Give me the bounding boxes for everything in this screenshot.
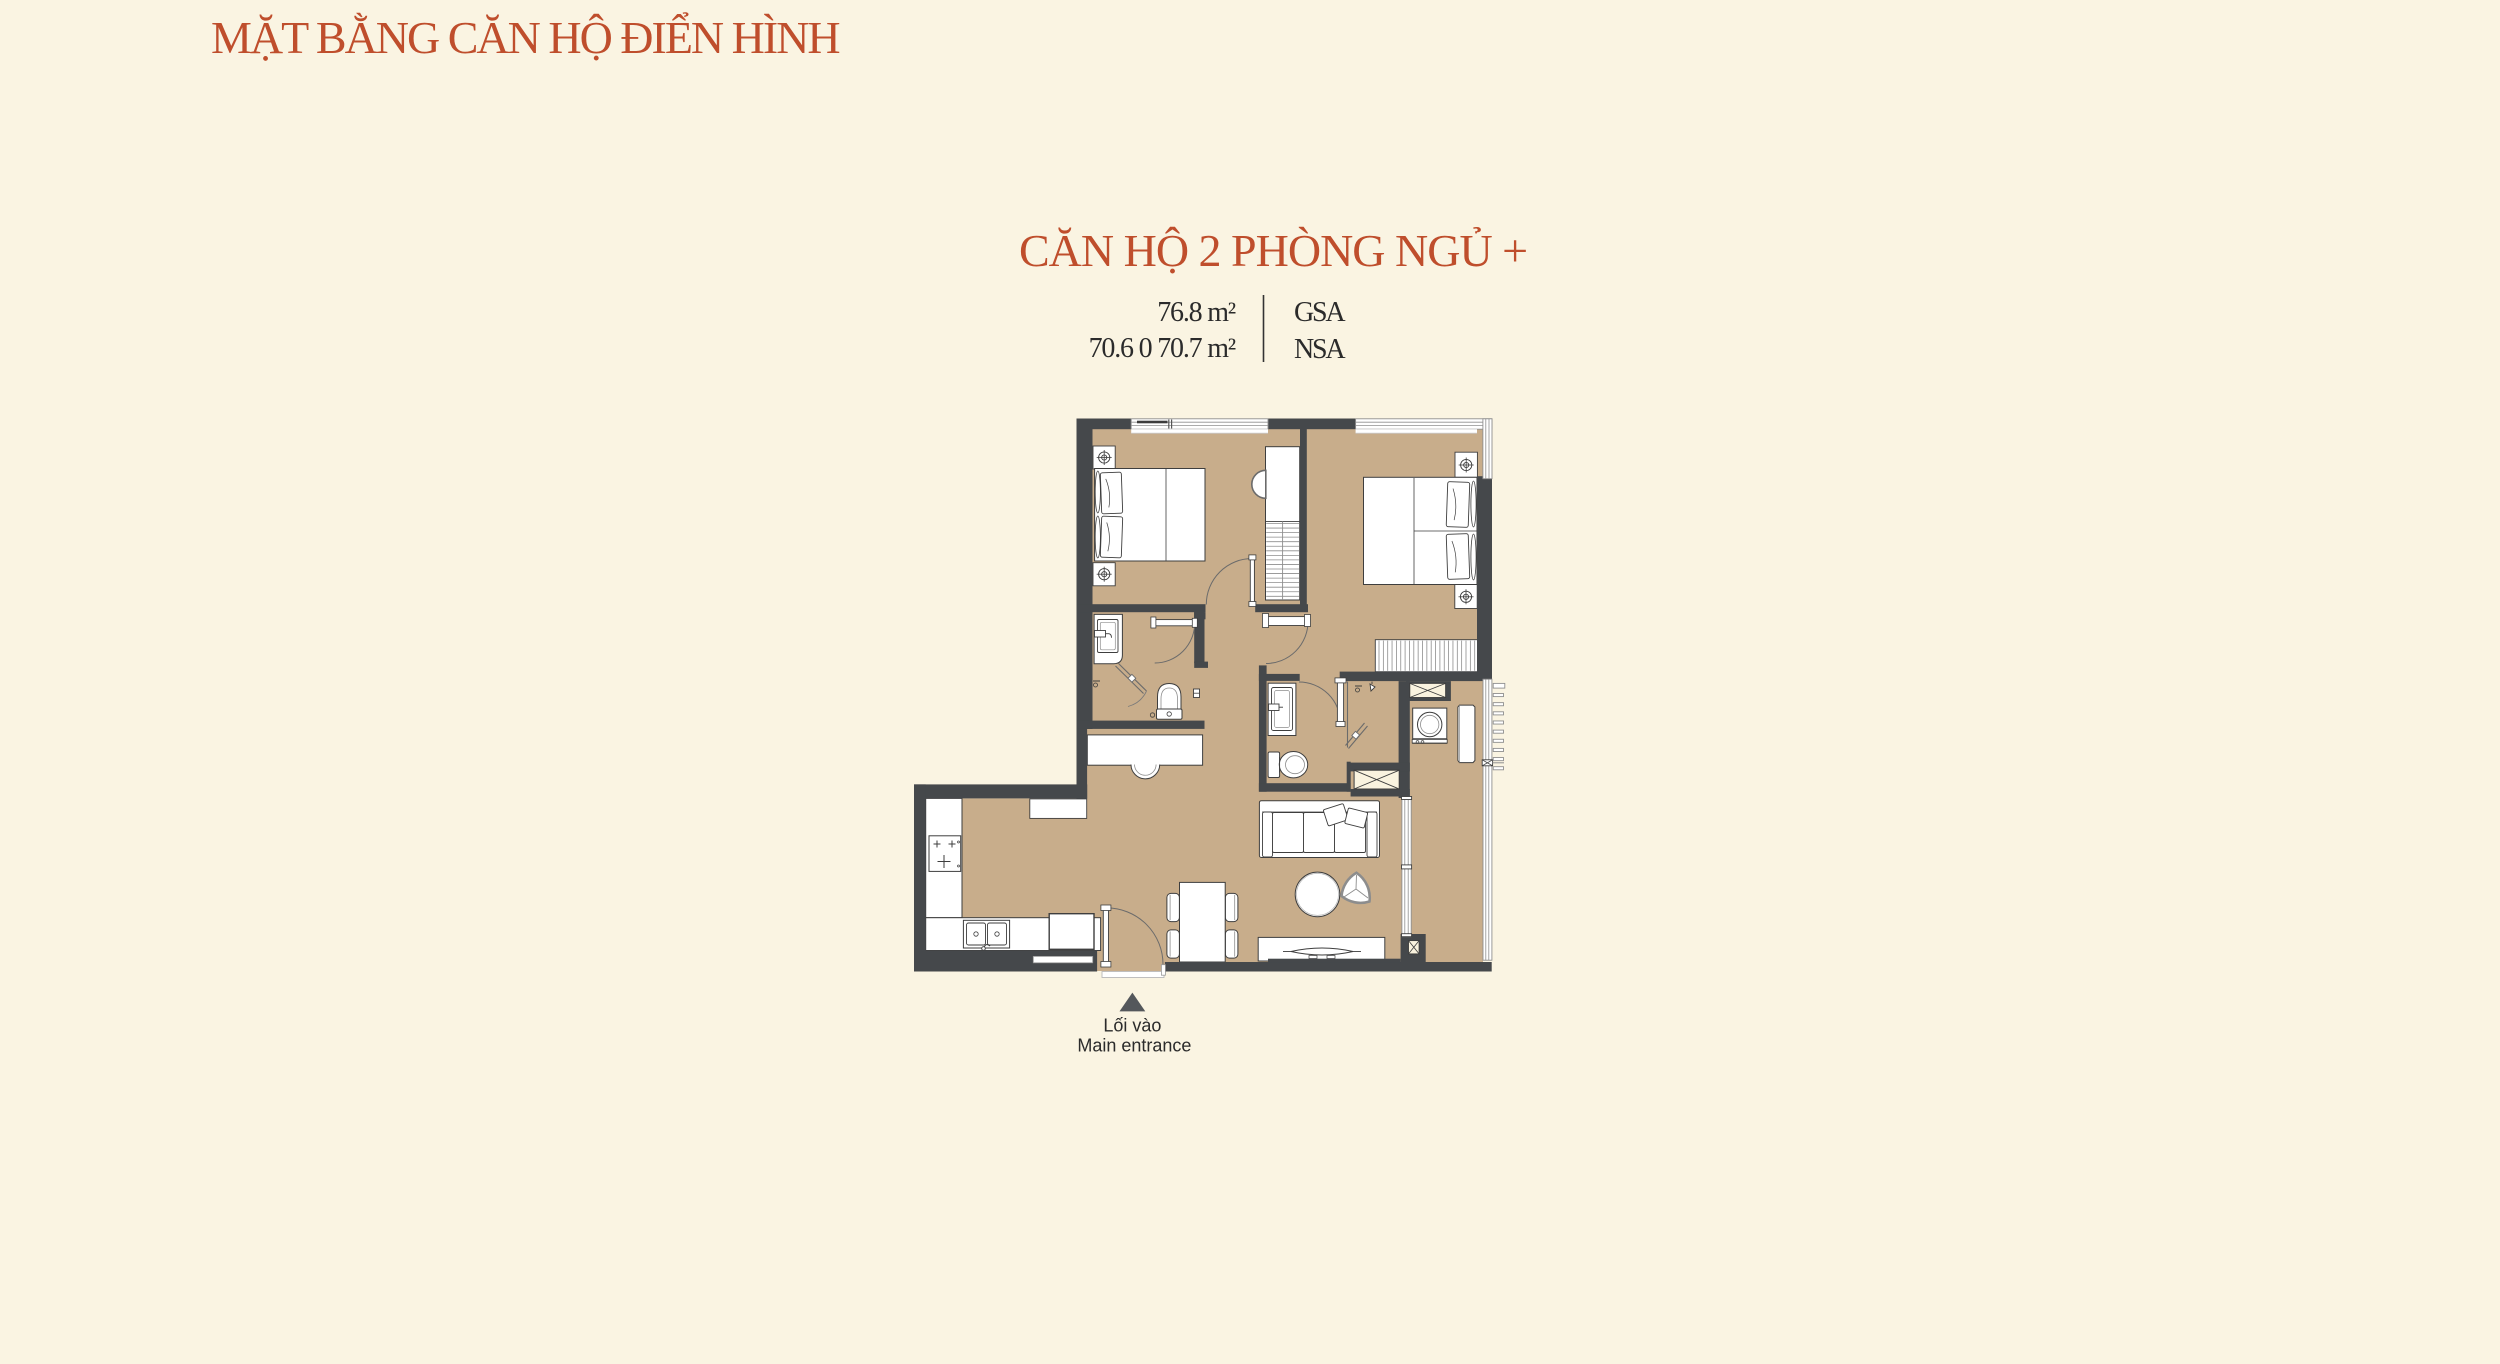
svg-text:76.8 m²: 76.8 m²	[1157, 297, 1236, 328]
svg-text:Lối vào: Lối vào	[1103, 1016, 1161, 1036]
svg-text:CĂN HỘ 2 PHÒNG NGỦ +: CĂN HỘ 2 PHÒNG NGỦ +	[1019, 225, 1527, 276]
svg-text:Main entrance: Main entrance	[1077, 1036, 1191, 1056]
svg-text:70.6 0 70.7 m²: 70.6 0 70.7 m²	[1089, 333, 1236, 364]
svg-text:GSA: GSA	[1294, 297, 1346, 328]
svg-text:NSA: NSA	[1294, 334, 1346, 365]
svg-text:MẶT BẰNG CĂN HỘ ĐIỂN HÌNH: MẶT BẰNG CĂN HỘ ĐIỂN HÌNH	[211, 11, 839, 63]
